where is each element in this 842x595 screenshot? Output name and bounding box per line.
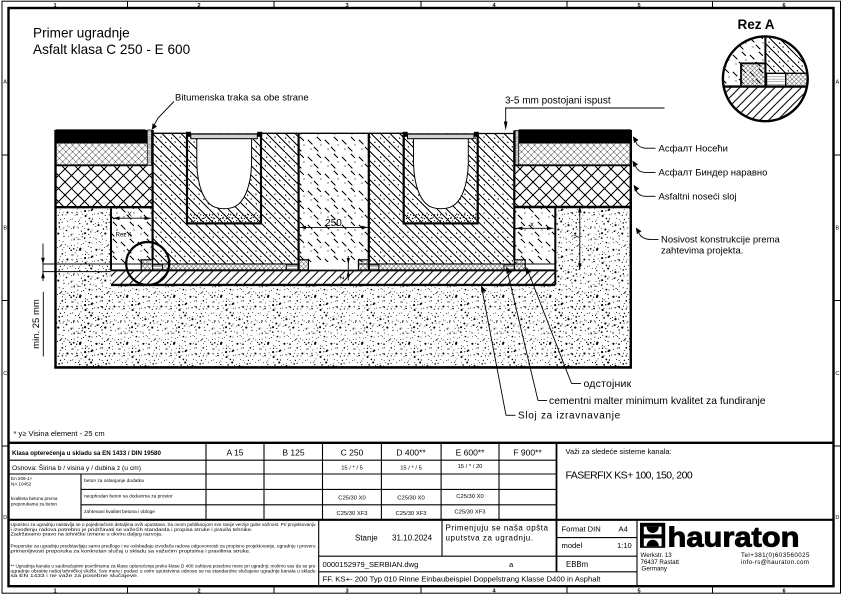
- svg-text:A 15: A 15: [226, 448, 243, 458]
- svg-text:Osnova: Širina b / visina y /: Osnova: Širina b / visina y / dubina z (…: [12, 463, 141, 472]
- svg-text:min. 25 mm: min. 25 mm: [31, 299, 42, 349]
- svg-text:primenljivosti preporuka za ko: primenljivosti preporuka za konkretan sl…: [11, 548, 251, 553]
- svg-text:5: 5: [637, 589, 640, 595]
- svg-text:6: 6: [782, 3, 785, 9]
- svg-text:2: 2: [197, 589, 200, 595]
- svg-text:Rez A: Rez A: [116, 231, 133, 238]
- svg-text:C25/30 X0: C25/30 X0: [397, 496, 424, 502]
- svg-text:A: A: [3, 80, 7, 86]
- svg-text:y: y: [571, 234, 580, 238]
- svg-text:A: A: [835, 80, 839, 86]
- svg-text:FF. KS+- 200 Typ 010 Rinne Ein: FF. KS+- 200 Typ 010 Rinne Einbaubeispie…: [323, 575, 602, 584]
- svg-text:Zadržavamo pravo na tehničke i: Zadržavamo pravo na tehničke izmene u ok…: [11, 532, 163, 537]
- svg-text:Асфалт Биндер наравно: Асфалт Биндер наравно: [659, 168, 768, 179]
- svg-text:C25/30 XF3: C25/30 XF3: [337, 511, 368, 517]
- svg-text:* y≥ Visina element - 25 cm: * y≥ Visina element - 25 cm: [14, 429, 105, 438]
- svg-text:Važi za sledeće sisteme kanala: Važi za sledeće sisteme kanala:: [566, 447, 672, 456]
- svg-text:5: 5: [637, 3, 640, 9]
- svg-text:Асфалт Носећи: Асфалт Носећи: [659, 144, 729, 155]
- svg-text:beton za oslanjanje dodatka: beton za oslanjanje dodatka: [84, 478, 144, 484]
- svg-text:B 125: B 125: [282, 448, 304, 458]
- svg-text:C: C: [835, 371, 839, 377]
- svg-text:sa EN 1433 i ne važe za posebn: sa EN 1433 i ne važe za posebne slučajev…: [11, 573, 139, 578]
- svg-text:C25/30 XF3: C25/30 XF3: [455, 509, 486, 515]
- svg-text:6: 6: [782, 589, 785, 595]
- svg-text:En 206-1+: En 206-1+: [11, 476, 33, 481]
- svg-text:E 600**: E 600**: [456, 448, 486, 458]
- svg-text:B: B: [835, 226, 839, 232]
- svg-text:x: x: [530, 220, 534, 229]
- svg-text:C: C: [3, 371, 7, 377]
- svg-text:X: X: [127, 209, 132, 218]
- svg-text:D: D: [3, 515, 7, 521]
- svg-text:Bitumenska traka sa obe strane: Bitumenska traka sa obe strane: [175, 93, 309, 104]
- svg-text:2: 2: [197, 3, 200, 9]
- svg-text:model: model: [562, 541, 583, 550]
- svg-text:uputstva za ugradnju.: uputstva za ugradnju.: [446, 534, 534, 543]
- svg-text:Nosivost konstrukcije prema: Nosivost konstrukcije prema: [661, 235, 781, 246]
- svg-text:hauraton: hauraton: [668, 522, 800, 553]
- svg-text:B: B: [3, 226, 7, 232]
- svg-text:Sloj za izravnavanje: Sloj za izravnavanje: [518, 411, 621, 422]
- svg-text:C25/30 X0: C25/30 X0: [338, 496, 365, 502]
- svg-text:zahtevima projekta.: zahtevima projekta.: [661, 246, 743, 257]
- svg-text:D: D: [835, 515, 839, 521]
- svg-text:250: 250: [325, 218, 342, 229]
- svg-text:15 / * / 5: 15 / * / 5: [400, 466, 422, 472]
- svg-text:preporukama za beton: preporukama za beton: [11, 502, 57, 507]
- svg-text:31.10.2024: 31.10.2024: [392, 534, 433, 543]
- svg-text:Primer ugradnje: Primer ugradnje: [33, 25, 130, 40]
- svg-text:F 900**: F 900**: [513, 448, 542, 458]
- svg-text:3: 3: [345, 589, 348, 595]
- svg-text:Format DIN: Format DIN: [562, 525, 601, 534]
- svg-text:EBBm: EBBm: [566, 560, 588, 569]
- svg-text:15 / * / 5: 15 / * / 5: [341, 466, 363, 472]
- svg-text:neophodan beton sa dodacima za: neophodan beton sa dodacima za prostor: [84, 494, 173, 500]
- svg-text:1:10: 1:10: [617, 541, 632, 550]
- svg-text:Asfalt klasa C 250 - E 600: Asfalt klasa C 250 - E 600: [33, 42, 191, 57]
- svg-text:info-rs@hauraton.com: info-rs@hauraton.com: [741, 559, 809, 566]
- svg-text:C25/30 X0: C25/30 X0: [456, 494, 483, 500]
- svg-text:cementni malter minimum kvalit: cementni malter minimum kvalitet za fund…: [549, 396, 766, 407]
- svg-text:1: 1: [53, 3, 56, 9]
- svg-text:3-5 mm postojani ispust: 3-5 mm postojani ispust: [505, 96, 611, 107]
- svg-text:kvaliteta betona prema: kvaliteta betona prema: [11, 496, 58, 501]
- svg-text:A4: A4: [619, 525, 628, 534]
- svg-text:Primenjuju se naša opšta: Primenjuju se naša opšta: [446, 524, 549, 533]
- svg-text:FASERFIX KS+ 100, 150, 200: FASERFIX KS+ 100, 150, 200: [566, 470, 693, 482]
- svg-text:z: z: [337, 276, 346, 280]
- svg-text:3: 3: [345, 3, 348, 9]
- svg-text:C25/30 XF3: C25/30 XF3: [396, 511, 427, 517]
- svg-text:D 400**: D 400**: [396, 448, 426, 458]
- svg-text:Rez A: Rez A: [738, 17, 775, 32]
- svg-text:Stanje: Stanje: [355, 534, 378, 543]
- svg-text:zahtevani kvalitet betona i ob: zahtevani kvalitet betona i obloge: [84, 509, 155, 515]
- svg-text:NA 10452: NA 10452: [11, 482, 32, 487]
- svg-text:C 250: C 250: [341, 448, 364, 458]
- svg-text:15 / * / 20: 15 / * / 20: [458, 464, 483, 470]
- svg-text:0000152979_SERBIAN.dwg: 0000152979_SERBIAN.dwg: [323, 560, 419, 569]
- svg-text:одстојник: одстојник: [584, 378, 632, 390]
- svg-text:Germany: Germany: [642, 566, 668, 573]
- svg-text:1: 1: [53, 589, 56, 595]
- svg-text:Asfaltni noseći sloj: Asfaltni noseći sloj: [659, 192, 737, 203]
- svg-text:Klasa opterećenja u skladu sa: Klasa opterećenja u skladu sa EN 1433 / …: [12, 450, 161, 457]
